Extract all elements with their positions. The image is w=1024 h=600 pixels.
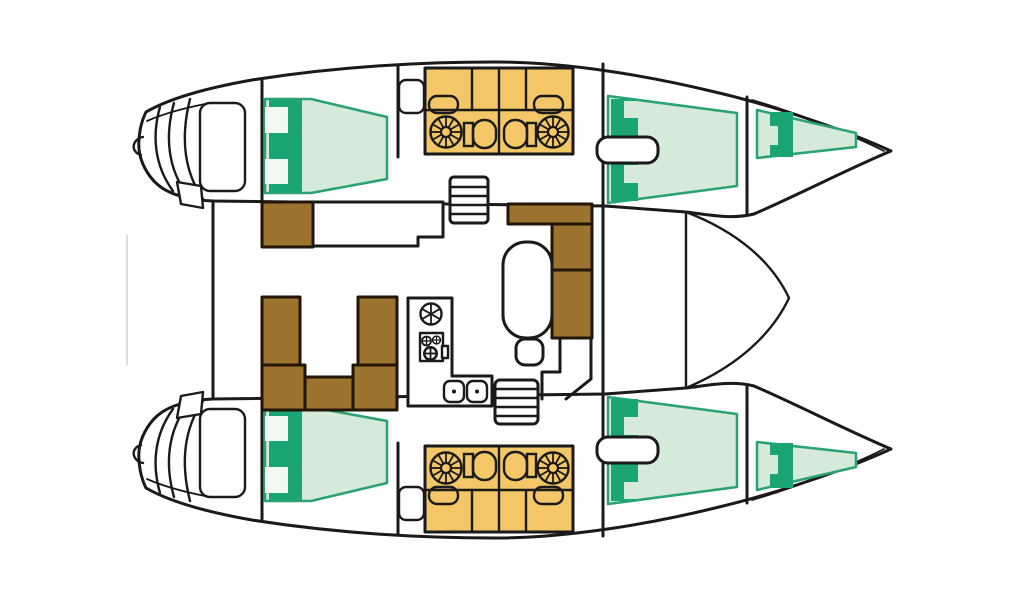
foredeck-beam: Forward crossbeam — [686, 212, 789, 388]
port-companionway-steps: Port companionway steps — [450, 177, 488, 223]
side-counter — [313, 202, 443, 246]
nav-station — [262, 202, 313, 247]
dinette: U-shaped dinette seating — [262, 297, 397, 410]
floor-plan-svg: Transom steps and swim platform Head and — [0, 0, 1024, 600]
port-hull: Port hull — [134, 62, 891, 217]
catamaran-floor-plan: Transom steps and swim platform Head and — [0, 0, 1024, 600]
stool — [516, 339, 543, 365]
saloon-table — [503, 242, 552, 338]
galley-stove-icon — [420, 333, 448, 361]
galley: Galley worktop — [408, 298, 492, 406]
